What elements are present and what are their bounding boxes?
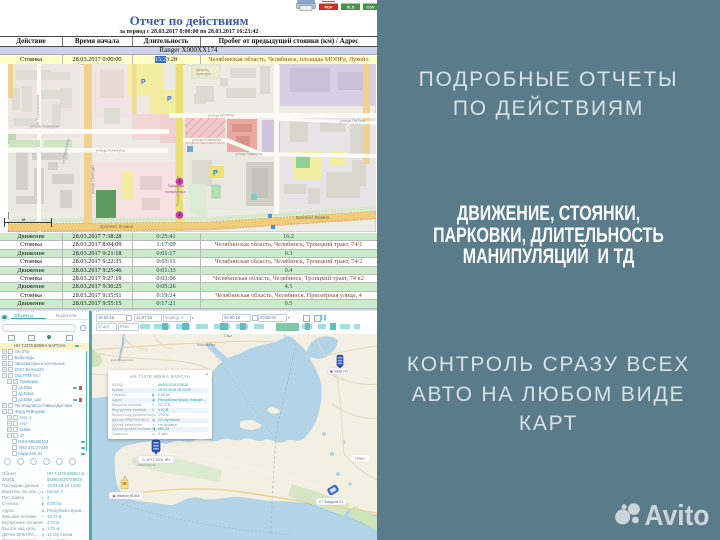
svg-text:▣ Иванов ВОВА: ▣ Иванов ВОВА [112,494,140,498]
svg-text:Avito: Avito [645,500,710,530]
svg-text:улица Коммуны: улица Коммуны [96,148,125,153]
svg-text:Севастополь: Севастополь [136,463,156,467]
svg-text:поликлиника: поликлиника [165,190,185,194]
svg-text:улица Коммуны: улица Коммуны [192,137,221,142]
svg-text:Новофёдоровка: Новофёдоровка [111,358,134,362]
svg-text:Николаевка: Николаевка [197,343,216,347]
svg-text:культуры: культуры [196,72,211,76]
svg-text:улица ПоТеш: улица ПоТеш [340,118,365,123]
svg-text:ул. Тернопольская: ул. Тернопольская [36,95,40,126]
svg-text:улица Коммуны: улица Коммуны [236,152,263,156]
svg-text:Новьк: Новьк [355,457,365,461]
svg-text:Городская: Городская [168,184,184,188]
svg-text:улица МОПРа: улица МОПРа [208,113,235,118]
svg-text:P: P [167,96,172,103]
svg-text:Саки: Саки [224,334,232,338]
svg-text:проспект Ленина: проспект Ленина [100,224,134,229]
svg-text:P: P [213,170,218,177]
svg-text:С/ НН ТJ378 .ЯН: С/ НН ТJ378 .ЯН [142,458,170,462]
svg-text:P: P [141,79,146,86]
svg-text:PDF: PDF [325,5,334,10]
svg-text:▣ Е888 РО: ▣ Е888 РО [330,370,349,374]
svg-text:CSV: CSV [366,5,375,10]
svg-text:проспект Ленина: проспект Ленина [296,215,330,220]
svg-text:С? Бакуров 41: С? Бакуров 41 [319,500,343,504]
svg-text:улица Коммуны: улица Коммуны [30,124,59,129]
svg-text:XLS: XLS [347,5,355,10]
svg-text:улица Свободы: улица Свободы [90,165,95,194]
